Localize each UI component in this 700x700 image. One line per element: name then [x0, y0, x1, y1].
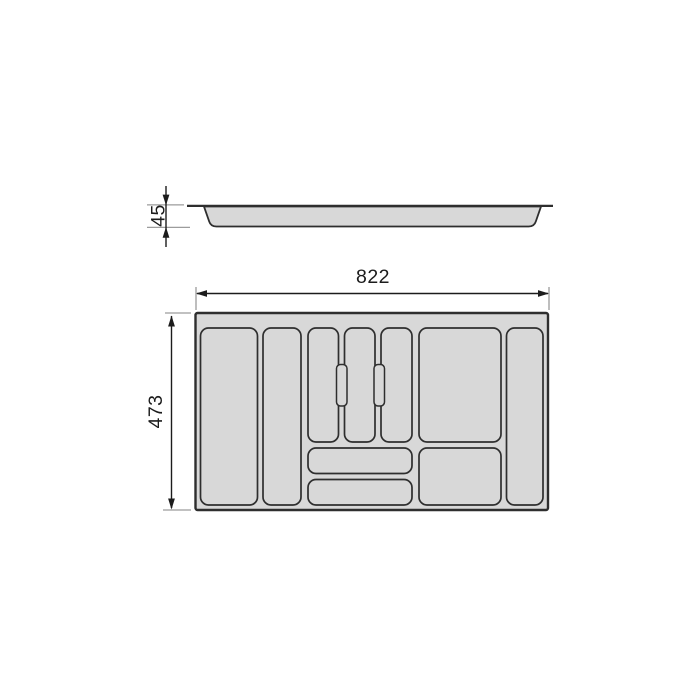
compartment-right-narrow	[507, 328, 544, 505]
technical-drawing: 45	[0, 0, 700, 700]
depth-dim-label: 473	[145, 394, 167, 428]
compartment-horizontal-upper	[308, 448, 412, 474]
divider-tab-1	[337, 365, 348, 407]
height-arrow-top	[163, 195, 170, 206]
height-dimension: 45	[147, 186, 190, 247]
top-view	[196, 313, 549, 510]
compartment-right-large	[419, 328, 501, 442]
depth-arrow-bottom	[168, 499, 175, 510]
width-dim-label: 822	[356, 266, 390, 288]
depth-arrow-top	[168, 316, 175, 327]
compartment-left-narrow	[263, 328, 301, 505]
side-view-tray-body	[204, 207, 541, 227]
compartment-horizontal-lower	[308, 480, 412, 506]
compartment-middle-1	[308, 328, 339, 442]
height-arrow-bottom	[163, 227, 170, 238]
compartment-bottom-right	[419, 448, 501, 505]
drawing-canvas: 45	[0, 0, 700, 700]
side-view	[187, 206, 553, 227]
compartment-middle-3	[381, 328, 412, 442]
compartment-middle-2	[345, 328, 376, 442]
compartment-left-large	[201, 328, 258, 505]
width-arrow-left	[196, 290, 207, 297]
depth-dimension: 473	[145, 313, 191, 510]
height-dim-label: 45	[147, 204, 169, 227]
divider-tab-2	[374, 365, 385, 407]
width-dimension: 822	[196, 266, 549, 310]
width-arrow-right	[538, 290, 549, 297]
